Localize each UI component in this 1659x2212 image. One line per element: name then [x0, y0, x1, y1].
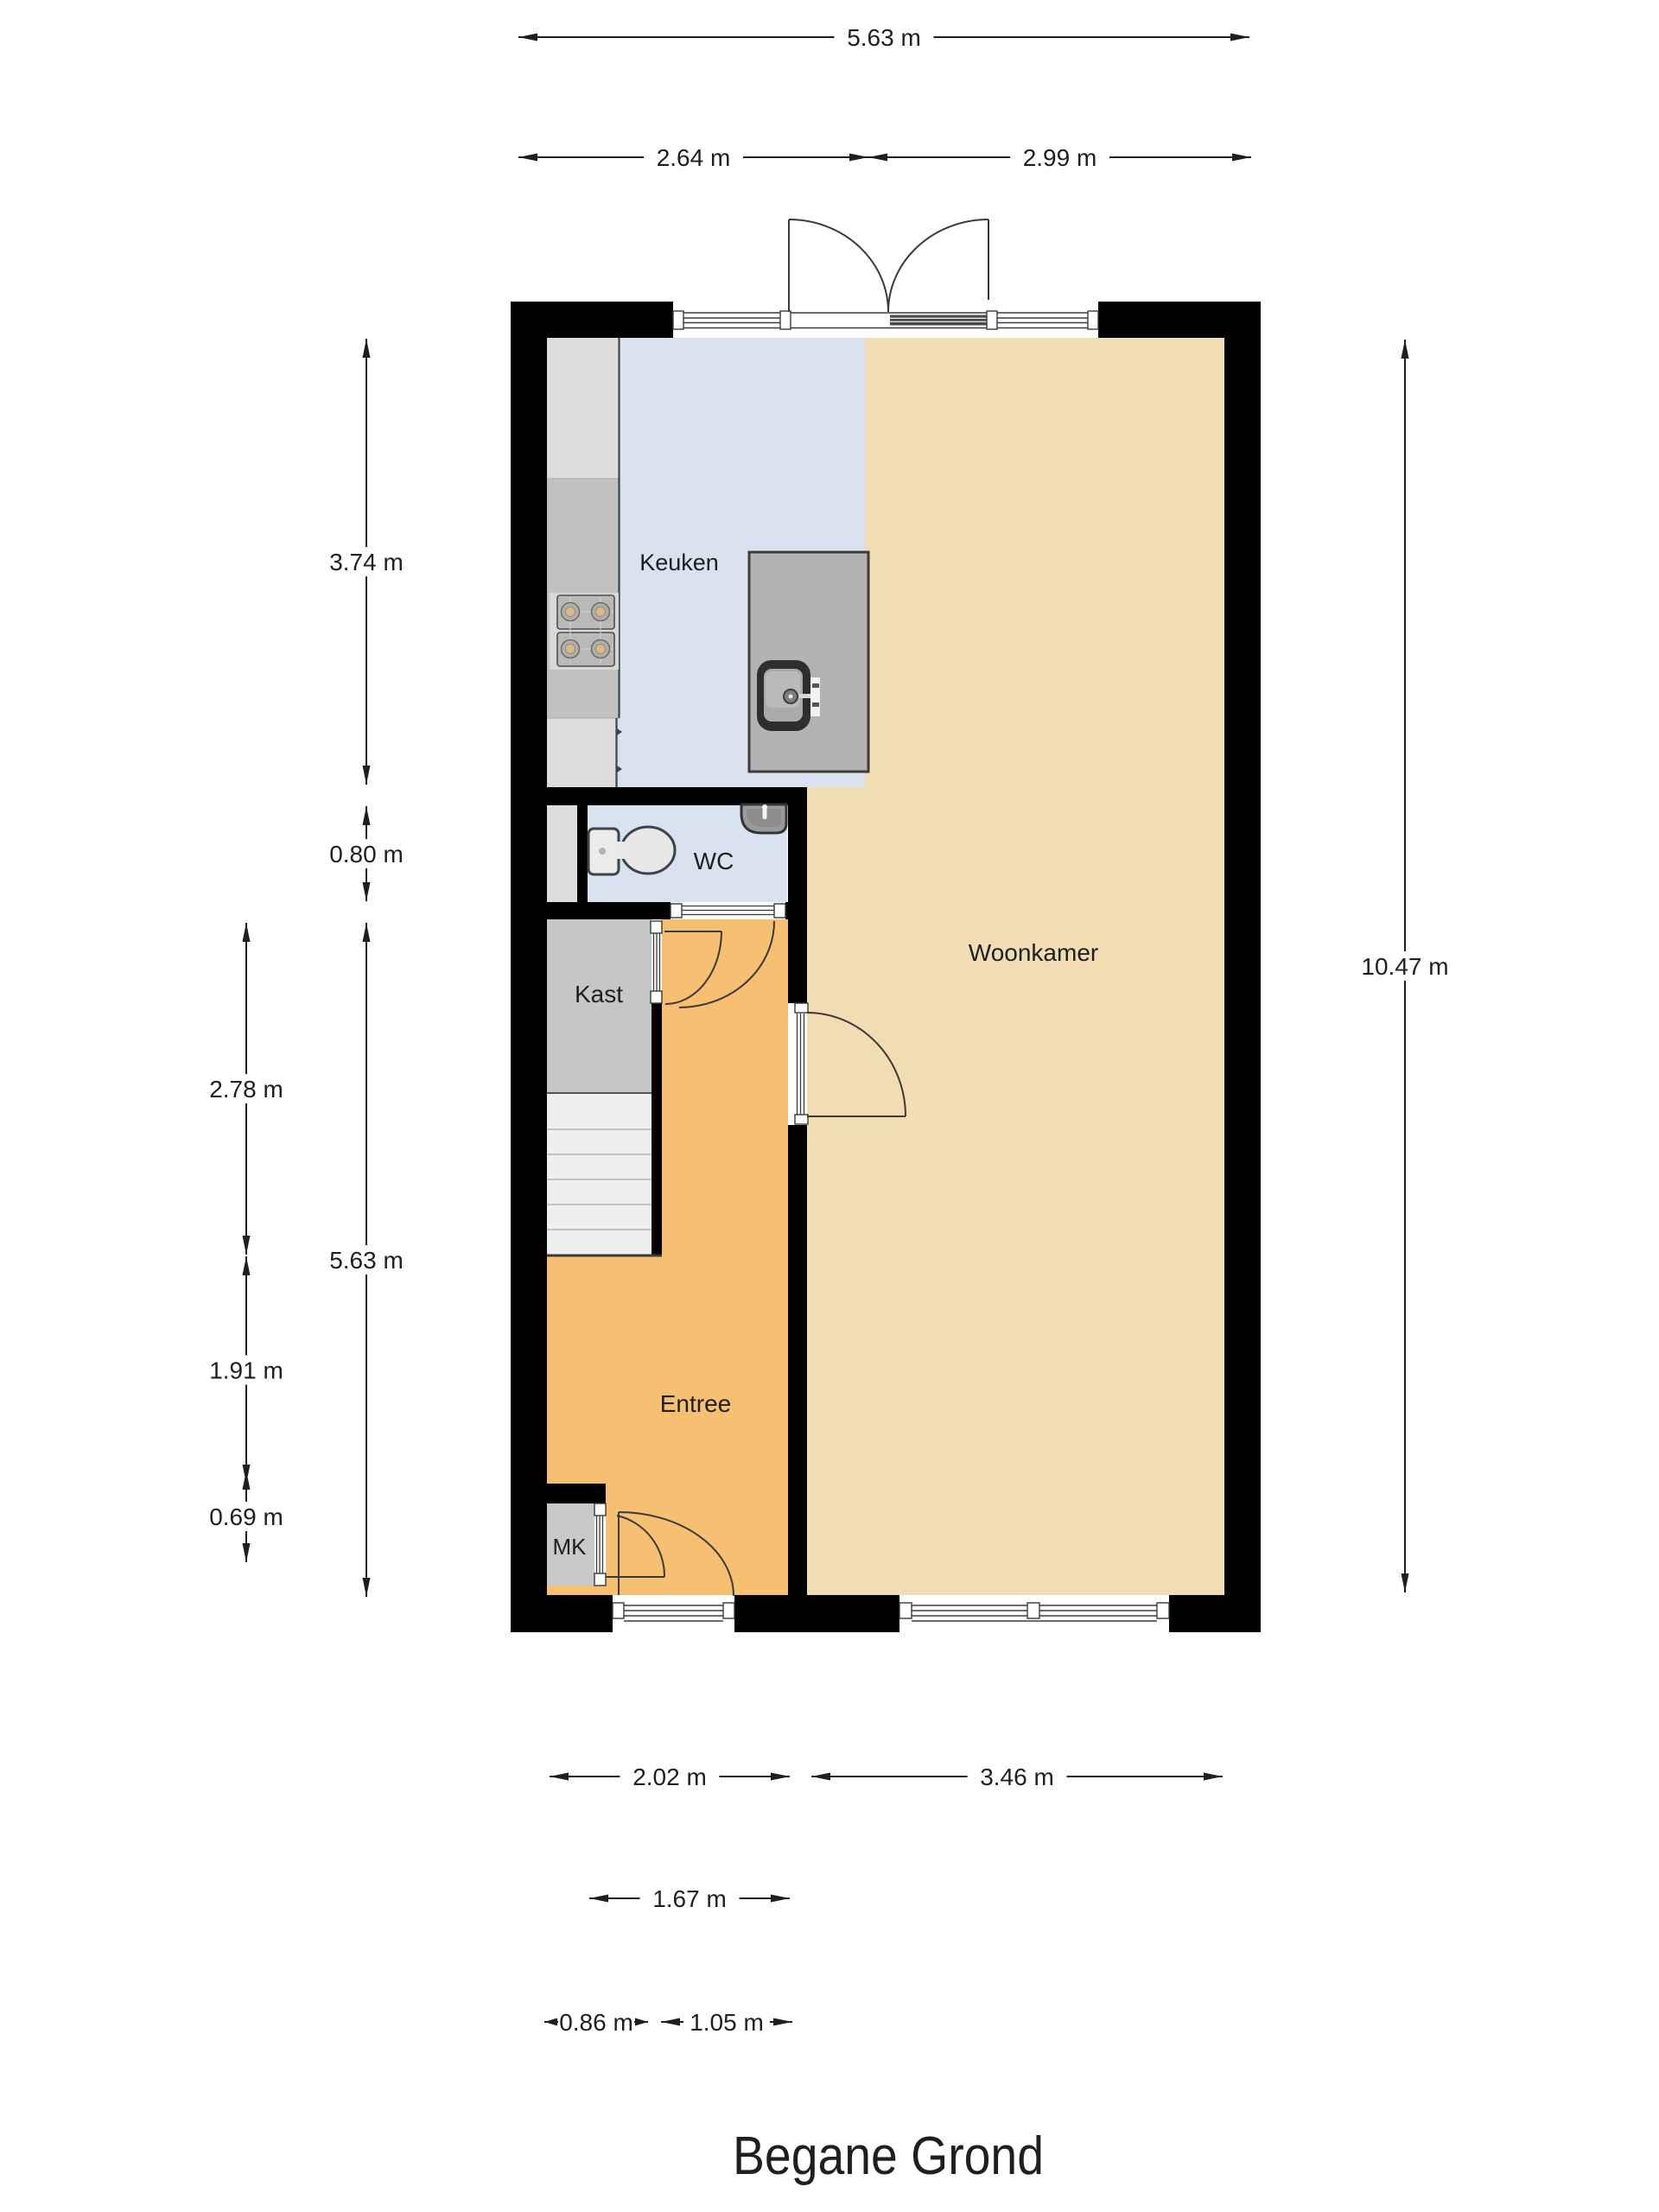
svg-text:WC: WC	[694, 848, 734, 874]
svg-text:2.99 m: 2.99 m	[1023, 144, 1097, 171]
svg-text:1.91 m: 1.91 m	[209, 1357, 283, 1384]
svg-text:0.69 m: 0.69 m	[209, 1503, 283, 1530]
svg-text:5.63 m: 5.63 m	[847, 24, 921, 51]
svg-text:1.67 m: 1.67 m	[652, 1885, 727, 1912]
svg-text:Keuken: Keuken	[639, 550, 719, 575]
svg-text:10.47 m: 10.47 m	[1361, 953, 1448, 980]
svg-text:5.63 m: 5.63 m	[329, 1247, 404, 1274]
svg-text:0.80 m: 0.80 m	[329, 841, 404, 868]
svg-text:3.46 m: 3.46 m	[980, 1764, 1054, 1790]
svg-text:Kast: Kast	[575, 981, 623, 1007]
svg-text:0.86 m: 0.86 m	[559, 2009, 633, 2036]
svg-text:2.78 m: 2.78 m	[209, 1076, 283, 1103]
svg-text:3.74 m: 3.74 m	[329, 549, 404, 575]
svg-text:Woonkamer: Woonkamer	[969, 939, 1098, 966]
svg-text:2.02 m: 2.02 m	[632, 1764, 707, 1790]
svg-text:Entree: Entree	[660, 1390, 732, 1417]
svg-text:1.05 m: 1.05 m	[690, 2009, 764, 2036]
svg-text:Begane Grond: Begane Grond	[733, 2126, 1044, 2186]
svg-text:MK: MK	[553, 1534, 588, 1560]
svg-text:2.64 m: 2.64 m	[657, 144, 731, 171]
